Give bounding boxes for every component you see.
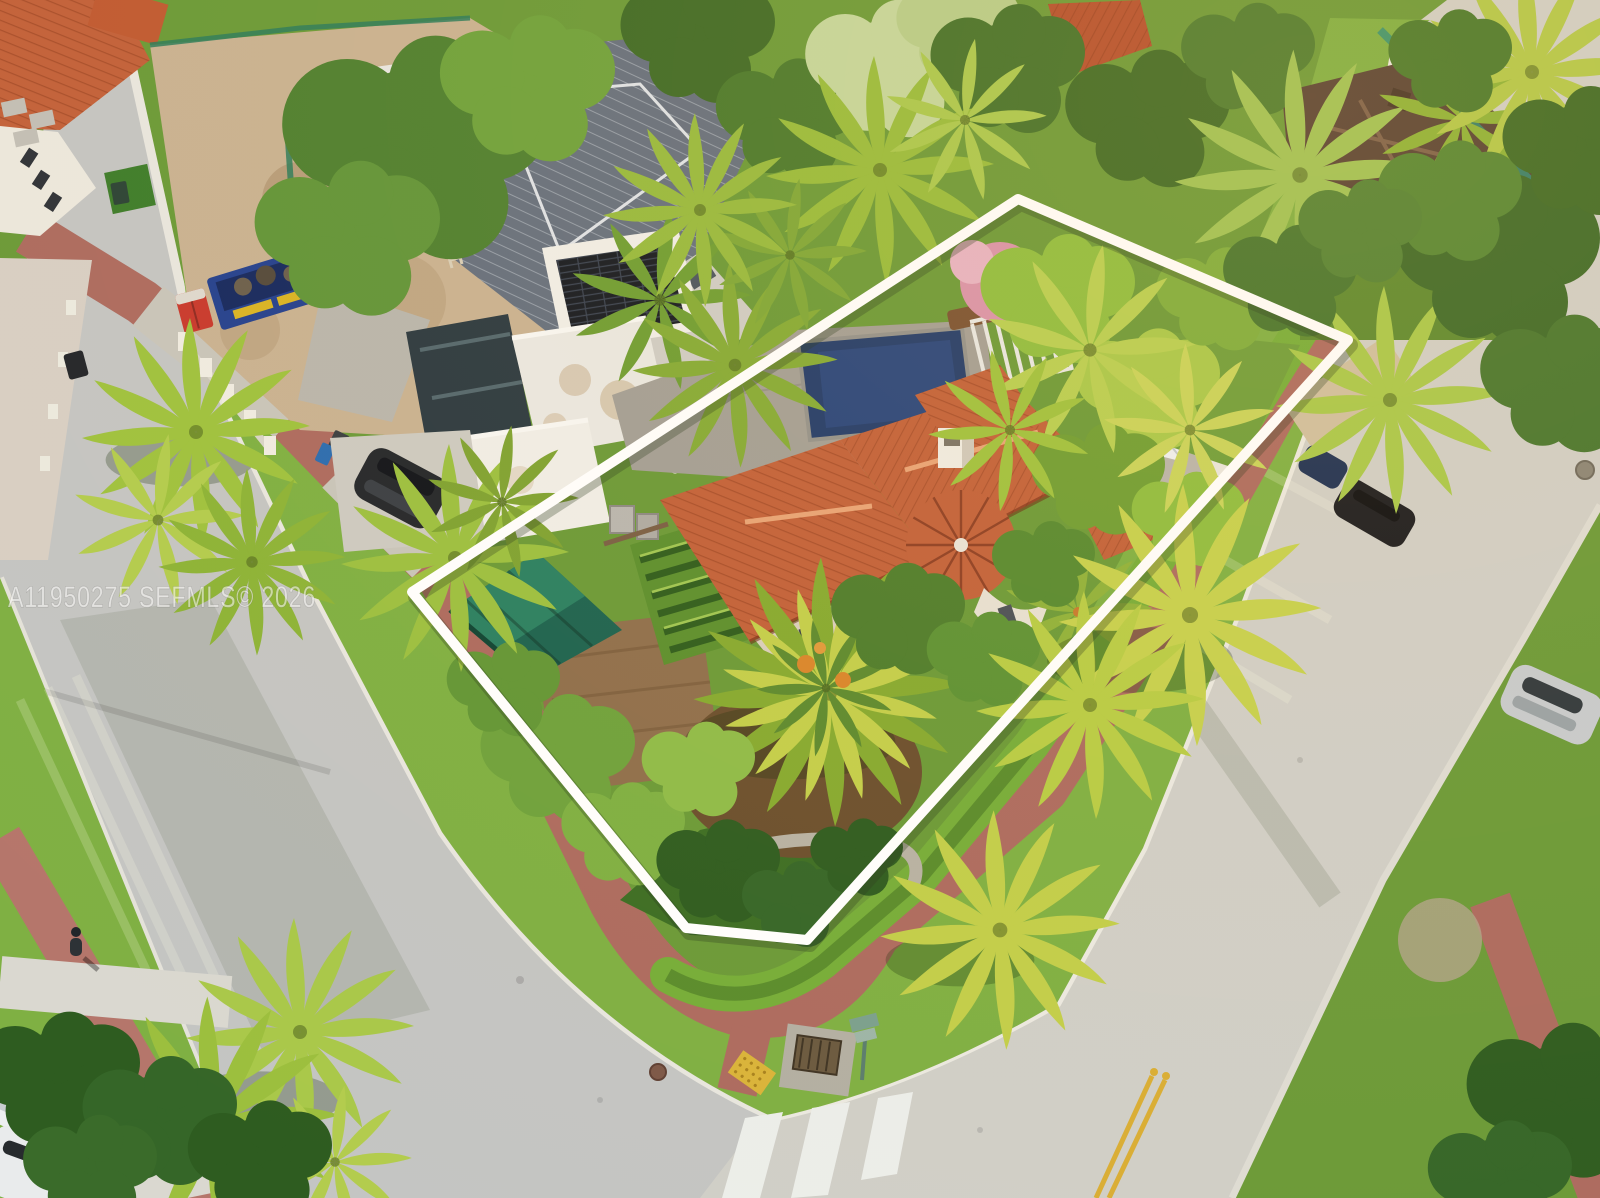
aerial-photo-canvas: A11950275 SEFMLS© 2026: [0, 0, 1600, 1198]
aerial-listing-photo: A11950275 SEFMLS© 2026: [0, 0, 1600, 1198]
sunlight-overlay: [0, 0, 1600, 1198]
